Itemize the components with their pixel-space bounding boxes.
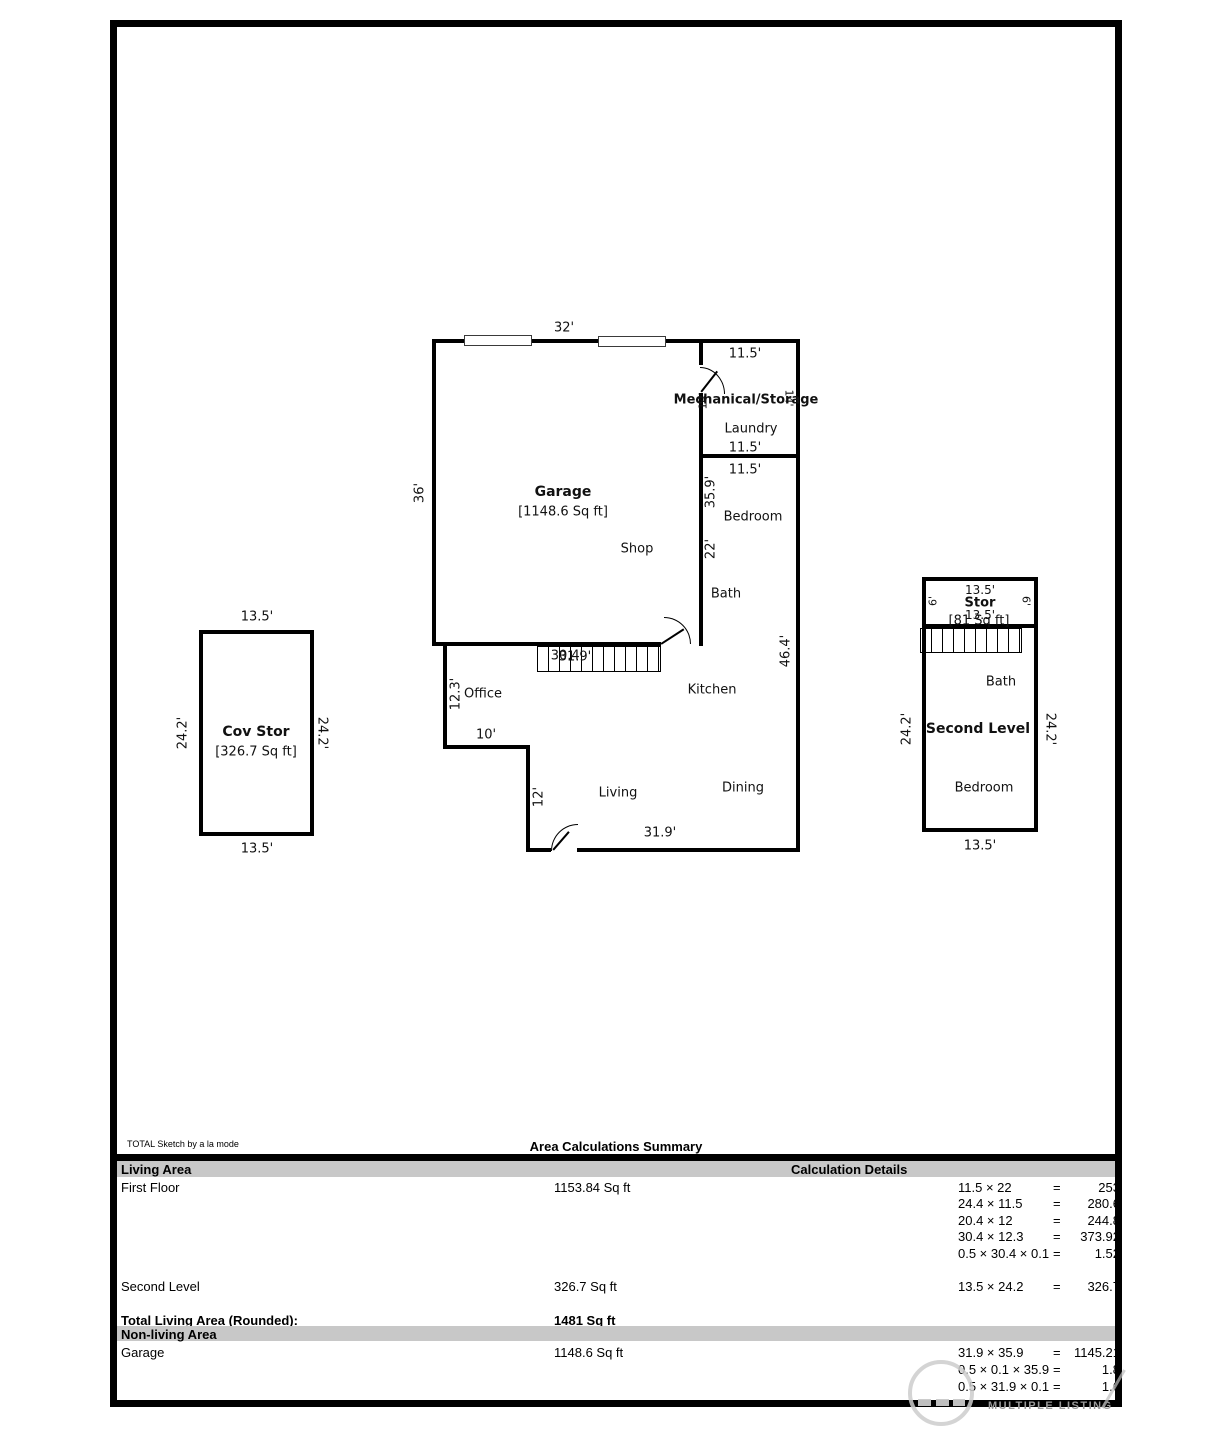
dim-covstor-left: 24.2' — [177, 717, 190, 750]
mls-logo-bar — [936, 1399, 949, 1406]
living-area-header: Living Area — [121, 1162, 191, 1177]
calc-result: 1.8 — [1040, 1362, 1120, 1377]
calc-line: 30.4 × 12.3 = 373.92 — [0, 1229, 1216, 1245]
calc-expression: 31.9 × 35.9 — [958, 1345, 1023, 1360]
dim-mech-top: 11.5' — [729, 348, 762, 361]
calc-expression: 20.4 × 12 — [958, 1213, 1013, 1228]
calc-expression: 13.5 × 24.2 — [958, 1279, 1023, 1294]
mls-watermark-text: MULTIPLE LISTING — [988, 1400, 1113, 1412]
calc-expression: 24.4 × 11.5 — [958, 1196, 1022, 1211]
dim-mech-right: 14' — [784, 389, 795, 406]
calc-result: 326.7 — [1040, 1279, 1120, 1294]
calc-line: 24.4 × 11.5 = 280.6 — [0, 1196, 1216, 1212]
dim-stor-left: 6' — [928, 596, 939, 606]
garage-area-label: [1148.6 Sq ft] — [518, 506, 608, 519]
dim-second-level-right: 24.2' — [1044, 713, 1057, 746]
wall-divider-stub — [699, 339, 703, 365]
dim-bottom-31-9: 31.9' — [644, 827, 677, 840]
calc-expression: 0.5 × 0.1 × 35.9 — [958, 1362, 1049, 1377]
floorplan-sketch-page: 32' 36' Garage [1148.6 Sq ft] Shop 11.5'… — [0, 0, 1216, 1440]
nonliving-header-band — [117, 1326, 1115, 1341]
calc-expression: 30.4 × 12.3 — [958, 1229, 1023, 1244]
calc-result: 1145.21 — [1040, 1345, 1120, 1360]
mechanical-storage-room-label: Mechanical/Storage — [674, 394, 819, 407]
calc-line: 0.5 × 30.4 × 0.1 = 1.52 — [0, 1246, 1216, 1262]
dim-covstor-top: 13.5' — [241, 611, 274, 624]
bath-room-label: Bath — [711, 588, 741, 601]
sketch-credit: TOTAL Sketch by a la mode — [127, 1137, 239, 1152]
garage-door-symbol — [598, 336, 666, 347]
calc-result: 280.6 — [1040, 1196, 1120, 1211]
wall-notch-vertical — [526, 745, 530, 852]
wall-divider-main — [699, 393, 703, 646]
mls-logo-circle — [908, 1360, 974, 1426]
calculation-details-header: Calculation Details — [791, 1162, 907, 1177]
dim-garage-top: 32' — [554, 322, 574, 335]
mls-logo-bar — [918, 1399, 931, 1406]
dim-covstor-bottom: 13.5' — [241, 843, 274, 856]
dim-second-level-left: 24.2' — [901, 713, 914, 746]
calc-result: 1.52 — [1040, 1246, 1120, 1261]
dim-wall-35-9: 35.9' — [705, 476, 718, 509]
dim-bedroom-top: 11.5' — [729, 464, 762, 477]
dim-stor-right: 6' — [1021, 596, 1032, 606]
dim-mech-left: 14' — [698, 392, 709, 409]
nonliving-area-header: Non-living Area — [121, 1327, 217, 1342]
cov-stor-room-label: Cov Stor — [222, 725, 289, 739]
second-level-bath-label: Bath — [986, 676, 1016, 689]
dim-office-left: 12.3' — [450, 678, 463, 711]
dim-notch: 10' — [476, 729, 496, 742]
dim-covstor-right: 24.2' — [316, 717, 329, 750]
calc-line: 0.5 × 31.9 × 0.1 = 1.6 — [0, 1379, 1216, 1395]
wall-bottom-left-segment — [526, 848, 551, 852]
dim-garage-left: 36' — [414, 483, 427, 503]
calc-line: 11.5 × 22 = 253 — [0, 1180, 1216, 1196]
dim-stor-top: 13.5' — [965, 584, 995, 596]
wall-garage-bottom — [432, 642, 661, 646]
calc-result: 373.92 — [1040, 1229, 1120, 1244]
calc-result: 253 — [1040, 1180, 1120, 1195]
office-room-label: Office — [464, 688, 502, 701]
summary-title: Area Calculations Summary — [530, 1139, 703, 1154]
wall-garage-left — [432, 339, 436, 646]
wall-bottom-right-segment — [577, 848, 800, 852]
stor-area-label: [81 Sq ft] — [949, 615, 1010, 628]
living-area-header-band — [117, 1161, 1115, 1177]
calc-line: 20.4 × 12 = 244.8 — [0, 1213, 1216, 1229]
wall-right — [796, 339, 800, 852]
bedroom-room-label: Bedroom — [724, 511, 783, 524]
second-level-label: Second Level — [926, 722, 1030, 736]
dim-stairs-b: 31.9' — [559, 651, 592, 664]
summary-divider-bar — [110, 1154, 1122, 1161]
cov-stor-area-label: [326.7 Sq ft] — [215, 746, 297, 759]
calc-result: 244.8 — [1040, 1213, 1120, 1228]
dining-room-label: Dining — [722, 782, 764, 795]
calc-line: 0.5 × 0.1 × 35.9 = 1.8 — [0, 1362, 1216, 1378]
living-room-label: Living — [599, 787, 638, 800]
shop-room-label: Shop — [621, 543, 654, 556]
dim-mech-bottom: 11.5' — [729, 442, 762, 455]
wall-notch-horizontal — [443, 745, 530, 749]
calc-line: 13.5 × 24.2 = 326.7 — [0, 1279, 1216, 1295]
calc-line: 31.9 × 35.9 = 1145.21 — [0, 1345, 1216, 1361]
dim-second-level-bottom: 13.5' — [964, 840, 997, 853]
dim-wall-46-4: 46.4' — [780, 635, 793, 668]
calc-expression: 11.5 × 22 — [958, 1180, 1012, 1195]
laundry-room-label: Laundry — [725, 423, 778, 436]
calc-result: 1.6 — [1040, 1379, 1120, 1394]
calc-expression: 0.5 × 30.4 × 0.1 — [958, 1246, 1049, 1261]
dim-wall-22: 22' — [705, 539, 718, 559]
second-level-bedroom-label: Bedroom — [955, 782, 1014, 795]
kitchen-room-label: Kitchen — [688, 684, 737, 697]
dim-step: 12' — [533, 787, 546, 807]
garage-door-symbol — [464, 335, 532, 346]
mls-logo-bar — [953, 1399, 965, 1406]
wall-office-left — [443, 646, 447, 749]
garage-room-label: Garage — [535, 485, 592, 499]
